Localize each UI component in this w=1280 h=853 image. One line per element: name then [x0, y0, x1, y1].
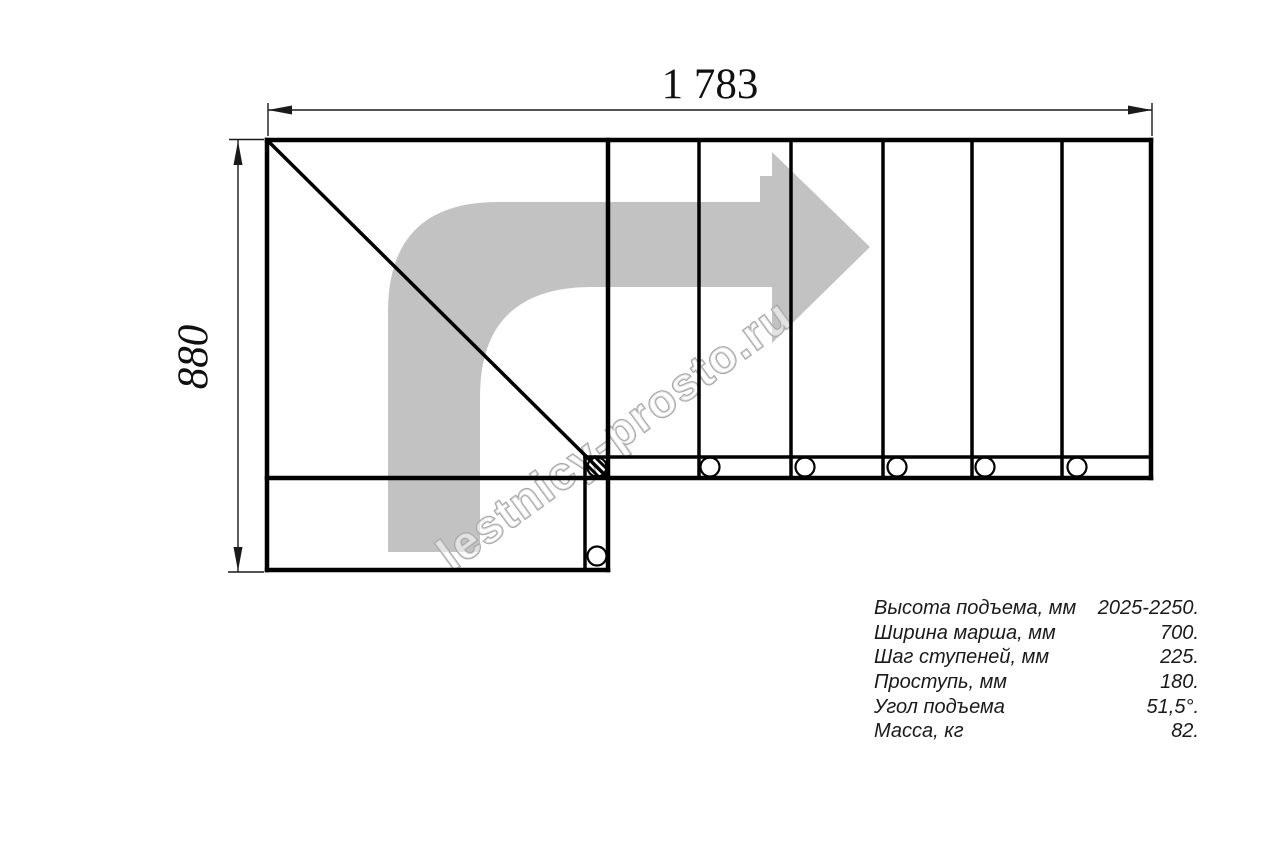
- spec-table: Высота подъема, мм 2025-2250. Ширина мар…: [874, 596, 1199, 744]
- bolt-circle: [588, 547, 607, 566]
- spec-value: 51,5°.: [1147, 695, 1199, 720]
- bolt-circle: [976, 458, 995, 477]
- width-dimension-label: 1 783: [662, 61, 759, 108]
- height-dim-arrow-top: [234, 141, 243, 165]
- spec-label: Угол подъема: [874, 695, 1005, 720]
- spec-value: 700.: [1160, 621, 1199, 646]
- bolt-circle: [701, 458, 720, 477]
- height-dimension: 880: [170, 140, 264, 573]
- spec-row-mass: Масса, кг 82.: [874, 719, 1199, 744]
- width-dim-arrow-left: [268, 106, 292, 115]
- spec-row-flight-width: Ширина марша, мм 700.: [874, 621, 1199, 646]
- spec-row-step-pitch: Шаг ступеней, мм 225.: [874, 645, 1199, 670]
- spec-label: Проступь, мм: [874, 670, 1007, 695]
- bolt-circles: [588, 458, 1087, 566]
- height-dim-arrow-bottom: [234, 547, 243, 571]
- spec-label: Высота подъема, мм: [874, 596, 1076, 621]
- spec-value: 180.: [1160, 670, 1199, 695]
- bolt-circle: [796, 458, 815, 477]
- direction-arrow: [388, 152, 870, 552]
- spec-row-climb-angle: Угол подъема 51,5°.: [874, 695, 1199, 720]
- bolt-circle: [1068, 458, 1087, 477]
- spec-label: Масса, кг: [874, 719, 964, 744]
- staircase-drawing-page: lestnicy-prosto.ru: [0, 0, 1280, 853]
- height-dimension-label: 880: [170, 325, 217, 390]
- width-dim-arrow-right: [1128, 106, 1152, 115]
- bolt-circle: [888, 458, 907, 477]
- spec-label: Ширина марша, мм: [874, 621, 1056, 646]
- spec-value: 2025-2250.: [1098, 596, 1199, 621]
- spec-row-rise-height: Высота подъема, мм 2025-2250.: [874, 596, 1199, 621]
- spec-value: 82.: [1171, 719, 1199, 744]
- spec-label: Шаг ступеней, мм: [874, 645, 1049, 670]
- spec-row-tread-depth: Проступь, мм 180.: [874, 670, 1199, 695]
- spec-value: 225.: [1160, 645, 1199, 670]
- width-dimension: 1 783: [268, 61, 1152, 136]
